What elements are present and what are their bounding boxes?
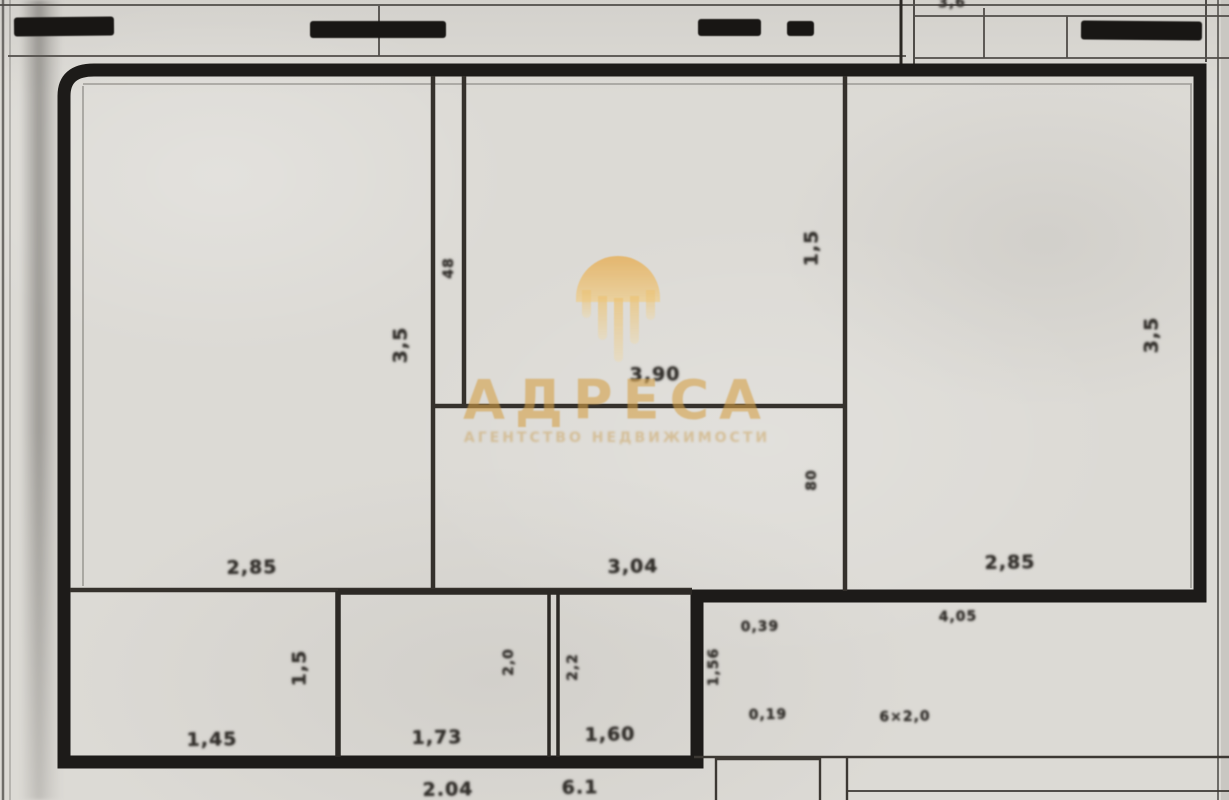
dim-label: 0,39: [741, 620, 780, 635]
dim-label: 0,19: [749, 708, 788, 723]
dim-label: 1,60: [584, 725, 635, 745]
dim-label: 6.1: [562, 778, 599, 798]
dim-label: 2,0: [502, 648, 516, 676]
dim-label: 1,56: [707, 648, 721, 687]
dim-label: 3,6: [938, 0, 966, 10]
dim-label: 2,85: [984, 553, 1035, 573]
dim-label: 80: [805, 469, 819, 490]
dim-label: 48: [442, 257, 456, 278]
dim-label: 1,5: [803, 230, 822, 267]
dim-label: 1,73: [411, 728, 462, 748]
dim-label: 2,2: [566, 653, 580, 681]
dim-label: 1,5: [291, 650, 310, 687]
floorplan-scan: 3,5483,901,5803,52,853,042,850,394,051,5…: [0, 0, 1229, 800]
dim-label: 1,45: [186, 730, 237, 750]
dim-label: 2.04: [422, 780, 473, 800]
dim-label: 6×2,0: [879, 710, 931, 725]
dim-label: 4,05: [939, 610, 978, 625]
dim-label: 3,5: [392, 327, 411, 364]
dim-label: 2,85: [226, 558, 277, 578]
dim-label: 3,90: [629, 365, 680, 385]
dimension-labels-layer: 3,5483,901,5803,52,853,042,850,394,051,5…: [0, 0, 1229, 800]
dim-label: 3,04: [607, 557, 658, 577]
dim-label: 3,5: [1143, 317, 1162, 354]
